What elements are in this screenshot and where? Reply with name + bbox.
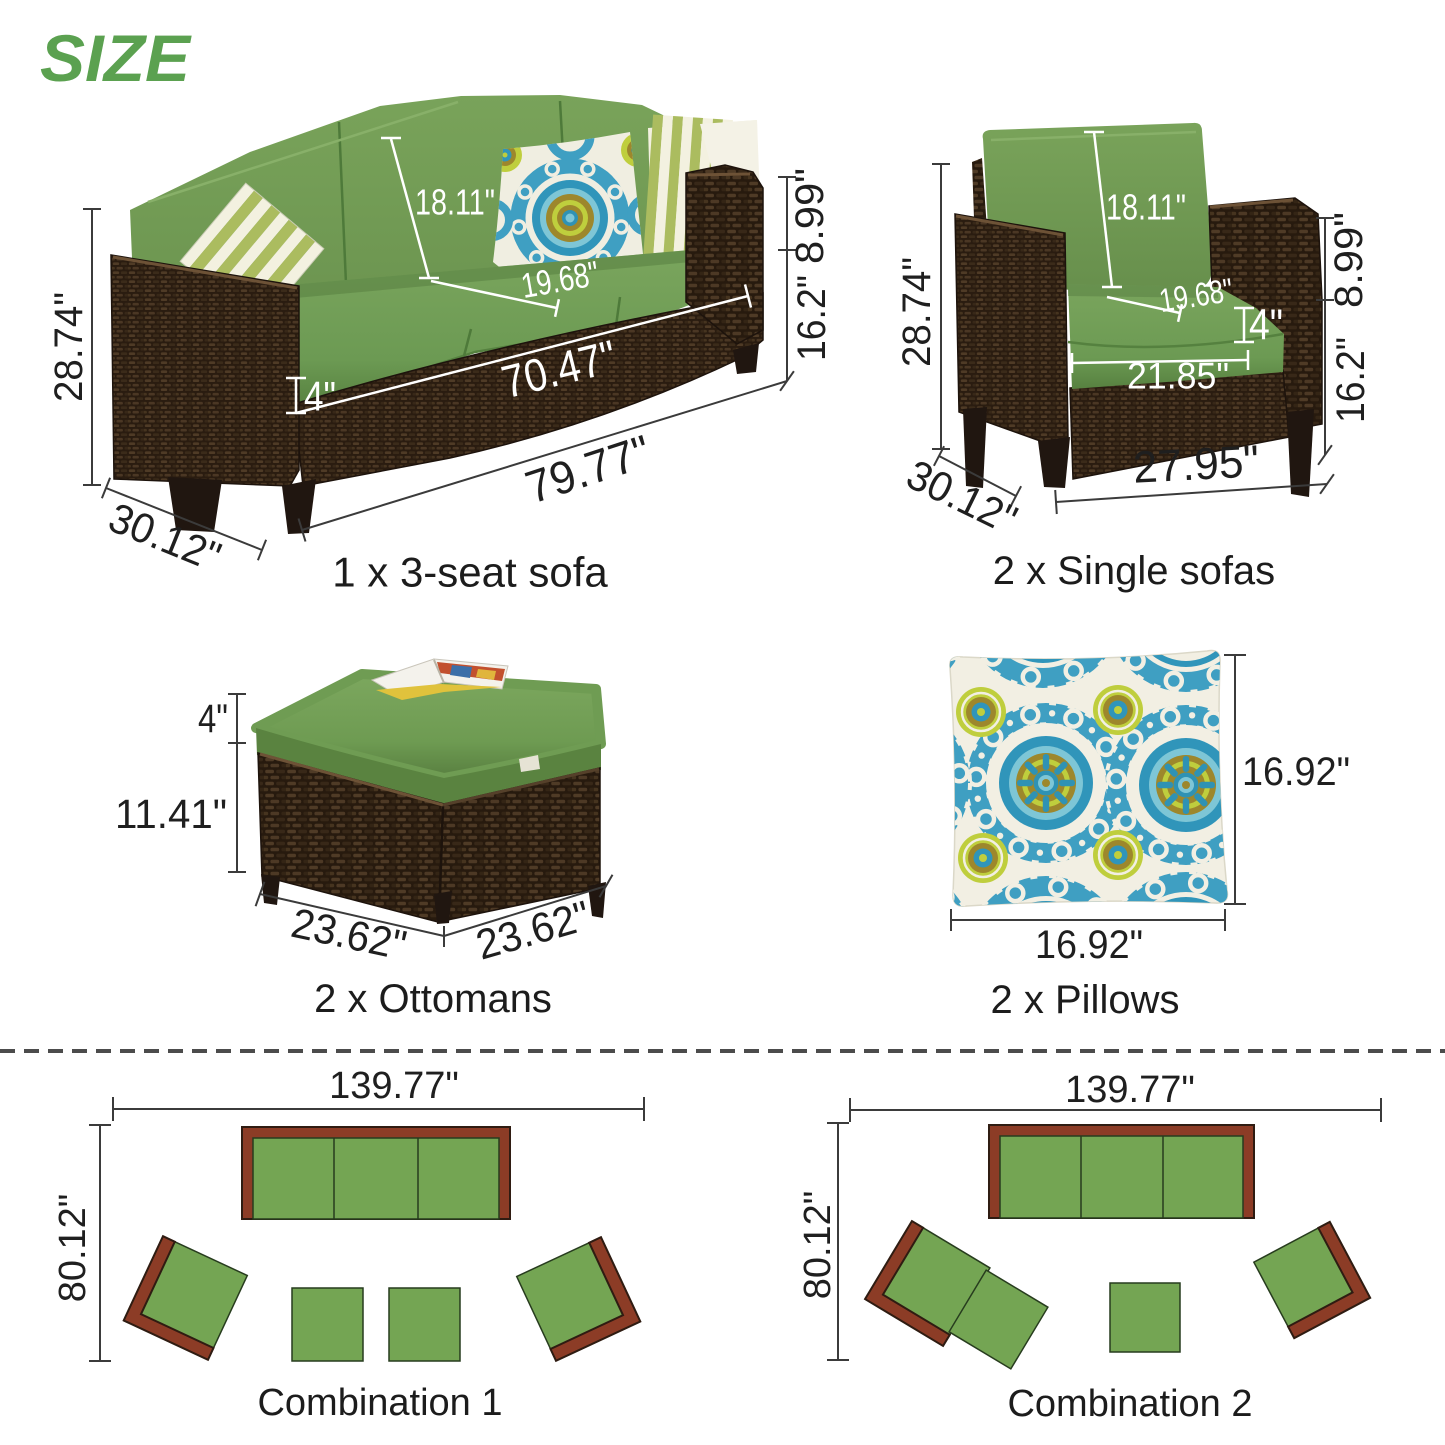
svg-text:2 x Ottomans: 2 x Ottomans [314, 977, 552, 1021]
svg-text:16.2": 16.2" [1329, 337, 1373, 423]
svg-text:16.92": 16.92" [1242, 750, 1350, 794]
svg-text:4": 4" [1249, 301, 1283, 350]
svg-text:SIZE: SIZE [40, 21, 192, 95]
svg-text:139.77": 139.77" [329, 1065, 459, 1107]
svg-text:27.95": 27.95" [1132, 435, 1260, 493]
svg-text:18.11": 18.11" [415, 182, 495, 223]
svg-text:4": 4" [304, 373, 336, 420]
svg-text:139.77": 139.77" [1065, 1069, 1195, 1111]
svg-text:11.41": 11.41" [115, 791, 227, 837]
svg-text:Combination 1: Combination 1 [257, 1382, 502, 1424]
svg-text:28.74": 28.74" [47, 292, 91, 402]
svg-text:2 x Pillows: 2 x Pillows [991, 978, 1180, 1022]
svg-text:21.85": 21.85" [1127, 356, 1229, 397]
svg-text:2 x Single sofas: 2 x Single sofas [993, 549, 1275, 593]
svg-text:8.99": 8.99" [1327, 212, 1371, 308]
svg-text:1 x 3-seat sofa: 1 x 3-seat sofa [332, 549, 608, 596]
svg-text:16.2": 16.2" [790, 275, 834, 361]
svg-text:28.74": 28.74" [895, 257, 939, 367]
svg-text:16.92": 16.92" [1035, 923, 1143, 967]
svg-text:80.12": 80.12" [52, 1194, 94, 1303]
svg-text:18.11": 18.11" [1106, 187, 1186, 228]
svg-text:Combination 2: Combination 2 [1007, 1383, 1252, 1425]
svg-text:8.99": 8.99" [788, 168, 832, 264]
svg-text:80.12": 80.12" [797, 1191, 839, 1300]
svg-text:4": 4" [198, 697, 228, 741]
